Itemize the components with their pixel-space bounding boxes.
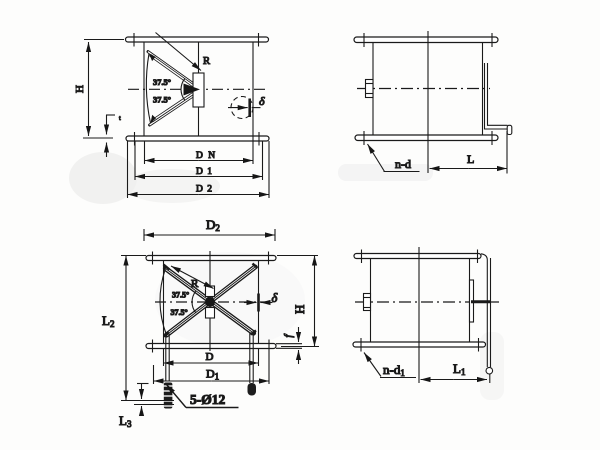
svg-text:37.5°: 37.5° (172, 291, 189, 300)
svg-text:R: R (203, 56, 210, 67)
svg-text:37.5°: 37.5° (153, 78, 171, 87)
svg-text:L3: L3 (119, 413, 132, 429)
svg-text:H: H (292, 305, 307, 314)
svg-text:D: D (206, 351, 214, 363)
svg-text:D N: D N (196, 151, 217, 161)
svg-text:5-Ø12: 5-Ø12 (190, 392, 225, 407)
svg-text:f: f (284, 334, 295, 338)
svg-text:n-d1: n-d1 (383, 362, 405, 378)
svg-text:t: t (119, 116, 121, 122)
svg-text:D 2: D 2 (196, 185, 213, 195)
svg-text:D2: D2 (206, 217, 220, 233)
svg-text:n-d: n-d (395, 157, 411, 171)
svg-text:37.5°: 37.5° (153, 96, 171, 105)
svg-text:L2: L2 (102, 313, 114, 329)
svg-text:L: L (467, 152, 474, 166)
svg-text:H: H (74, 85, 86, 93)
svg-text:δ: δ (272, 291, 278, 305)
svg-text:R: R (191, 278, 199, 290)
svg-text:δ: δ (259, 94, 265, 108)
svg-text:L1: L1 (453, 361, 465, 377)
svg-text:37.5°: 37.5° (171, 308, 188, 317)
svg-text:D1: D1 (206, 367, 219, 382)
svg-text:D 1: D 1 (196, 167, 213, 177)
